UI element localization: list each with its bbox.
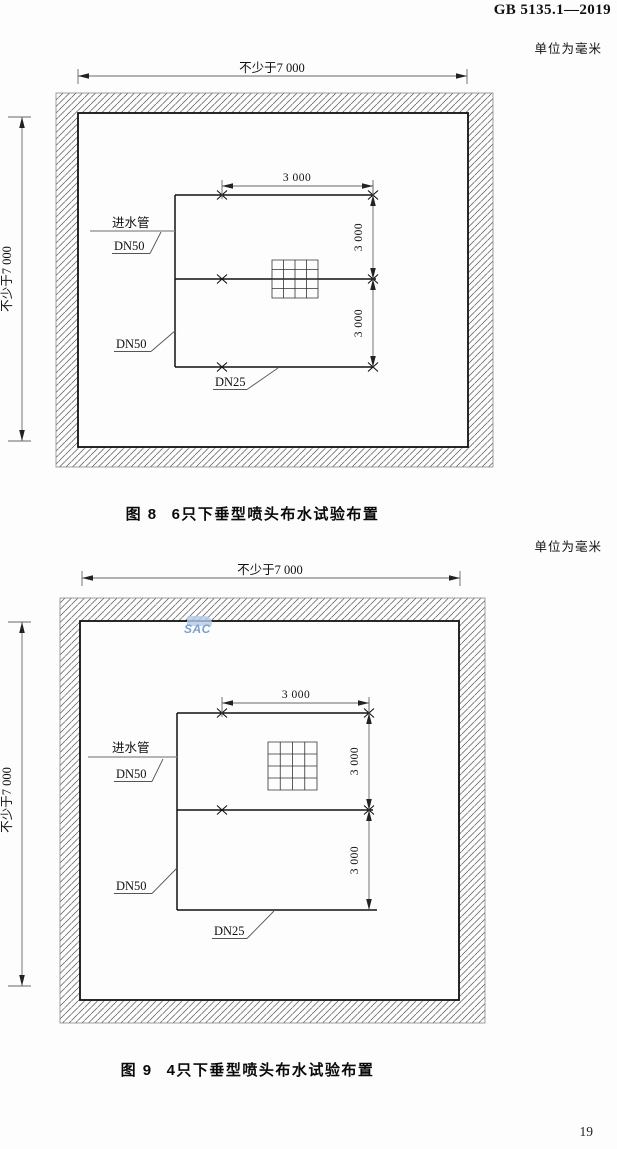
standard-document-page: { "page": { "header_title": "GB 5135.1—2… <box>0 0 617 1149</box>
figure9-drawing: 不少于7 000 不少于7 000 3 000 3 000 <box>0 555 510 1030</box>
unit-note-figure8: 单位为毫米 <box>534 38 602 57</box>
sac-watermark-text: SAC <box>184 622 214 636</box>
page-number: 19 <box>580 1124 594 1140</box>
room-wall <box>56 93 493 467</box>
figure9-caption: 图 94只下垂型喷头布水试验布置 <box>55 1059 440 1080</box>
figure9-caption-text: 4只下垂型喷头布水试验布置 <box>167 1062 375 1079</box>
inlet-pipe-text: 进水管 <box>112 740 150 755</box>
figure9-caption-label: 图 9 <box>121 1062 153 1079</box>
sac-watermark: SAC <box>184 616 214 636</box>
dim-room-width-text: 不少于7 000 <box>239 61 305 75</box>
dn25-text: DN25 <box>215 375 246 389</box>
figure8-caption-text: 6只下垂型喷头布水试验布置 <box>172 506 380 523</box>
dim-room-width-text: 不少于7 000 <box>237 563 303 577</box>
figure8-caption-label: 图 8 <box>126 506 158 523</box>
dn50-lower-text: DN50 <box>116 879 147 893</box>
dim-spacing-right-upper-text: 3 000 <box>349 747 361 775</box>
dim-spacing-right-lower-text: 3 000 <box>349 846 361 874</box>
label-inlet-pipe: 进水管 <box>112 740 150 755</box>
dim-room-height: 不少于7 000 <box>0 622 31 986</box>
inlet-pipe-text: 进水管 <box>112 215 150 230</box>
dim-spacing-top-text: 3 000 <box>283 172 311 184</box>
dim-spacing-right-lower-text: 3 000 <box>353 309 365 337</box>
dn50-upper-text: DN50 <box>116 767 147 781</box>
dim-room-height-text: 不少于7 000 <box>0 246 14 312</box>
figure8-drawing: 不少于7 000 不少于7 000 3 000 <box>0 55 510 470</box>
dim-room-width: 不少于7 000 <box>82 563 460 586</box>
unit-note-figure9: 单位为毫米 <box>534 536 602 555</box>
dim-spacing-top-text: 3 000 <box>282 689 310 701</box>
dn25-text: DN25 <box>214 924 245 938</box>
label-inlet-pipe: 进水管 <box>112 215 150 230</box>
dim-spacing-right-upper-text: 3 000 <box>353 223 365 251</box>
dim-room-height: 不少于7 000 <box>0 117 31 441</box>
document-number: GB 5135.1—2019 <box>494 2 611 19</box>
dim-room-height-text: 不少于7 000 <box>0 767 14 833</box>
dim-room-width: 不少于7 000 <box>78 61 467 84</box>
figure8-caption: 图 86只下垂型喷头布水试验布置 <box>60 503 445 524</box>
dn50-upper-text: DN50 <box>114 239 145 253</box>
dn50-lower-text: DN50 <box>116 337 147 351</box>
